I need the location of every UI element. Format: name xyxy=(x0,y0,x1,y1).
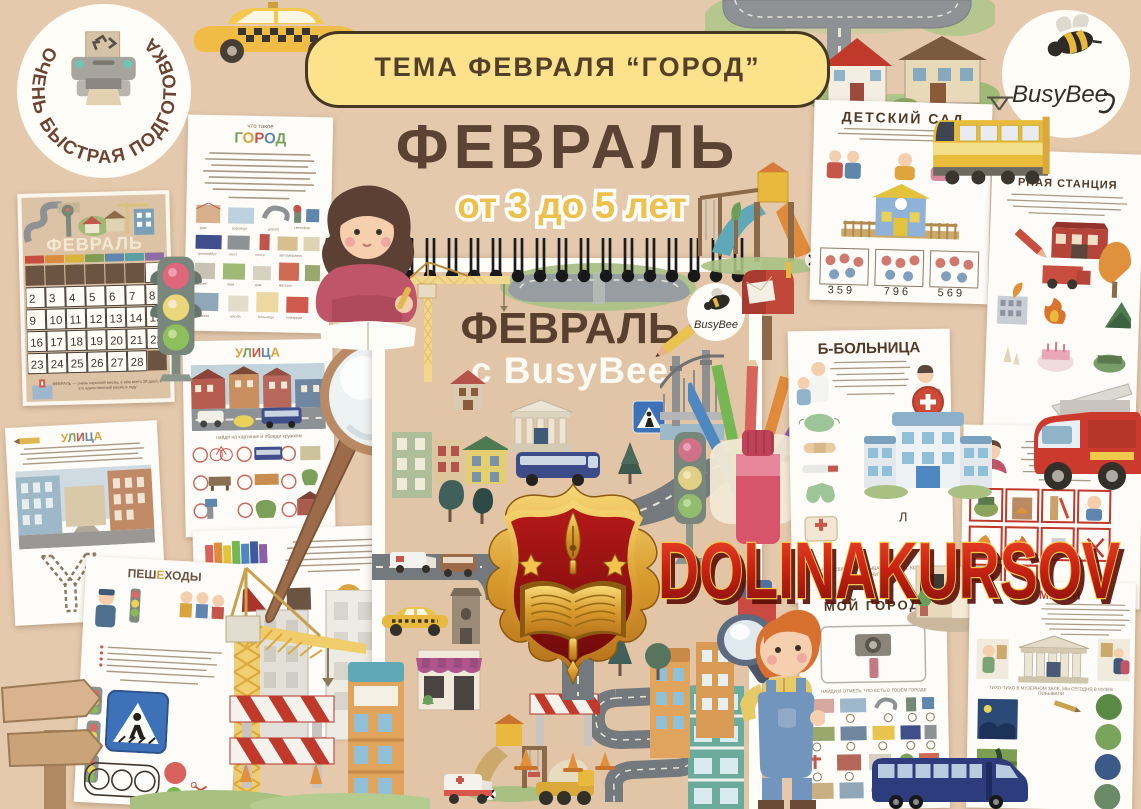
svg-text:мост: мост xyxy=(229,252,237,256)
svg-text:23: 23 xyxy=(31,359,44,371)
svg-text:магазин: магазин xyxy=(279,283,292,287)
svg-text:3: 3 xyxy=(49,293,56,305)
svg-text:27: 27 xyxy=(111,357,124,369)
svg-text:11: 11 xyxy=(69,314,81,326)
svg-text:от 3 до 5 лет: от 3 до 5 лет xyxy=(457,185,686,226)
svg-text:16: 16 xyxy=(30,337,43,349)
svg-text:28: 28 xyxy=(131,357,144,369)
svg-text:19: 19 xyxy=(90,336,103,348)
svg-text:13: 13 xyxy=(109,313,122,325)
svg-text:5: 5 xyxy=(89,292,96,304)
svg-text:7 9 6: 7 9 6 xyxy=(883,286,908,299)
svg-text:24: 24 xyxy=(51,359,65,371)
svg-text:10: 10 xyxy=(49,315,62,327)
svg-text:21: 21 xyxy=(130,335,143,347)
svg-text:6: 6 xyxy=(109,291,116,303)
svg-text:почта: почта xyxy=(255,253,264,257)
svg-text:2: 2 xyxy=(29,294,36,306)
svg-text:25: 25 xyxy=(71,358,84,370)
svg-text:14: 14 xyxy=(129,313,143,325)
svg-text:дом: дом xyxy=(200,226,207,230)
svg-text:17: 17 xyxy=(50,337,63,349)
svg-text:7: 7 xyxy=(129,291,136,303)
svg-text:18: 18 xyxy=(70,336,83,348)
svg-text:DOLINAKURSOV: DOLINAKURSOV xyxy=(658,528,1120,615)
svg-text:20: 20 xyxy=(110,335,123,347)
svg-text:BusyBee: BusyBee xyxy=(694,319,738,331)
svg-text:дом: дом xyxy=(255,283,262,287)
svg-text:дорога: дорога xyxy=(268,227,279,231)
svg-text:аэропорт: аэропорт xyxy=(232,226,248,230)
svg-text:5 6 9: 5 6 9 xyxy=(937,287,962,298)
svg-text:автозаправка: автозаправка xyxy=(279,253,302,257)
svg-text:12: 12 xyxy=(89,314,102,326)
svg-text:парк: парк xyxy=(227,282,235,286)
svg-text:4: 4 xyxy=(69,293,76,305)
svg-text:26: 26 xyxy=(91,358,104,370)
svg-text:9: 9 xyxy=(29,316,36,328)
svg-text:3 5 9: 3 5 9 xyxy=(828,284,853,297)
svg-text:школа: школа xyxy=(230,314,241,318)
